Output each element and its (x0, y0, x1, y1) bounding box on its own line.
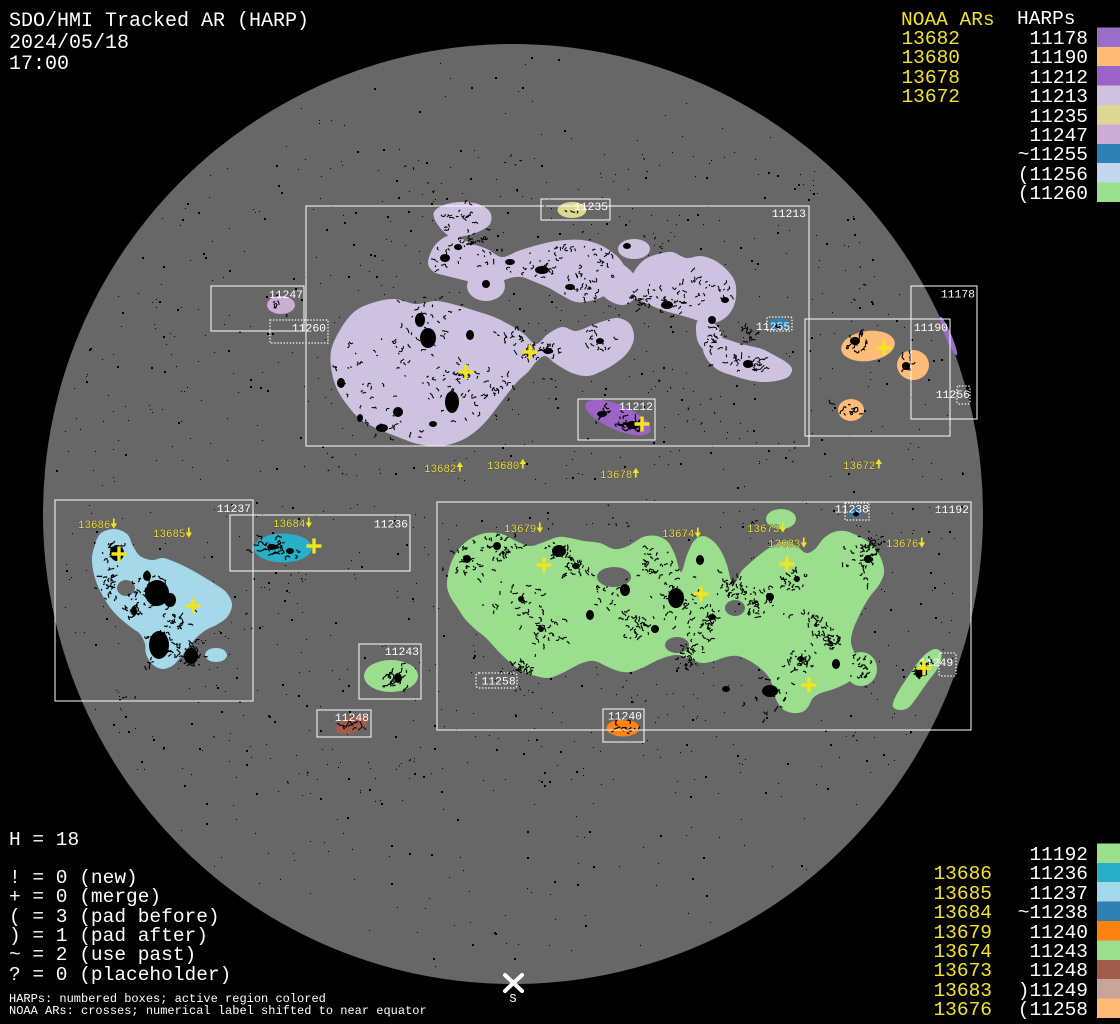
svg-text:13686: 13686 (78, 520, 110, 532)
svg-text:11247: 11247 (269, 290, 303, 302)
svg-text:13678: 13678 (600, 470, 632, 482)
svg-text:13680: 13680 (901, 47, 960, 69)
svg-text:2024/05/18: 2024/05/18 (9, 32, 129, 55)
svg-text:11236: 11236 (1029, 863, 1088, 885)
svg-text:11260: 11260 (292, 324, 326, 336)
svg-text:NOAA ARs: crosses; numerical l: NOAA ARs: crosses; numerical label shift… (9, 1004, 427, 1018)
svg-text:S: S (509, 992, 516, 1006)
svg-text:H = 18: H = 18 (9, 829, 79, 851)
svg-text:13679: 13679 (504, 524, 536, 536)
svg-text:? = 0 (placeholder): ? = 0 (placeholder) (9, 964, 231, 986)
svg-text:~11255: ~11255 (1018, 144, 1088, 166)
svg-text:17:00: 17:00 (9, 53, 69, 76)
svg-text:11256: 11256 (936, 390, 970, 402)
svg-text:+ = 0 (merge): + = 0 (merge) (9, 886, 161, 908)
svg-text:11240: 11240 (608, 712, 642, 724)
svg-text:13686: 13686 (933, 863, 992, 885)
svg-text:13676: 13676 (933, 999, 992, 1021)
svg-text:13683: 13683 (768, 539, 800, 551)
svg-text:(11258: (11258 (1018, 999, 1088, 1021)
svg-text:13673: 13673 (933, 960, 992, 982)
svg-text:11178: 11178 (941, 290, 975, 302)
svg-text:SDO/HMI Tracked AR (HARP): SDO/HMI Tracked AR (HARP) (9, 10, 309, 33)
svg-text:11190: 11190 (1029, 47, 1088, 69)
svg-text:11238: 11238 (835, 505, 869, 517)
svg-text:13685: 13685 (153, 529, 185, 541)
svg-text:13682: 13682 (424, 464, 456, 476)
svg-text:11213: 11213 (772, 209, 806, 221)
svg-text:~ = 2 (use past): ~ = 2 (use past) (9, 944, 196, 966)
svg-text:13676: 13676 (886, 539, 918, 551)
svg-text:11237: 11237 (217, 504, 251, 516)
svg-text:11258: 11258 (482, 677, 516, 689)
svg-text:11190: 11190 (914, 323, 948, 335)
svg-text:11236: 11236 (374, 520, 408, 532)
svg-text:(11260: (11260 (1018, 183, 1088, 205)
svg-text:13680: 13680 (487, 461, 519, 473)
svg-text:11235: 11235 (574, 202, 608, 214)
svg-text:13674: 13674 (662, 529, 694, 541)
svg-text:HARPs: HARPs (1017, 8, 1076, 30)
svg-text:11243: 11243 (385, 647, 419, 659)
svg-text:11213: 11213 (1029, 86, 1088, 108)
svg-text:11255: 11255 (756, 322, 790, 334)
svg-text:13684: 13684 (273, 519, 305, 531)
svg-text:11192: 11192 (935, 505, 969, 517)
svg-text:~11238: ~11238 (1018, 902, 1088, 924)
svg-text:13672: 13672 (901, 86, 960, 108)
svg-text:13684: 13684 (933, 902, 992, 924)
svg-text:13672: 13672 (843, 461, 875, 473)
svg-text:11248: 11248 (1029, 960, 1088, 982)
svg-text:11248: 11248 (335, 713, 369, 725)
svg-text:13673: 13673 (747, 524, 779, 536)
svg-text:11212: 11212 (619, 402, 653, 414)
